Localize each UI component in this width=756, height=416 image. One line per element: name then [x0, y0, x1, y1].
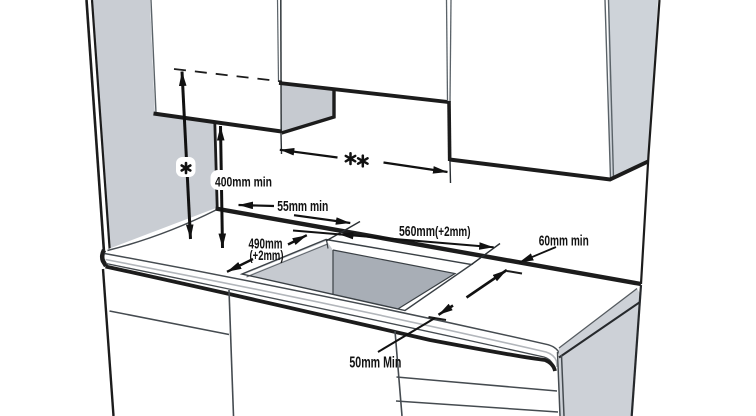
- svg-text:50mm Min: 50mm Min: [349, 354, 401, 371]
- svg-text:(+2mm): (+2mm): [435, 224, 471, 239]
- svg-text:55mm min: 55mm min: [277, 198, 328, 215]
- svg-text:60mm min: 60mm min: [539, 232, 589, 249]
- svg-text:400mm min: 400mm min: [215, 175, 272, 190]
- svg-text:560mm: 560mm: [399, 223, 435, 240]
- svg-text:(+2mm): (+2mm): [250, 248, 284, 263]
